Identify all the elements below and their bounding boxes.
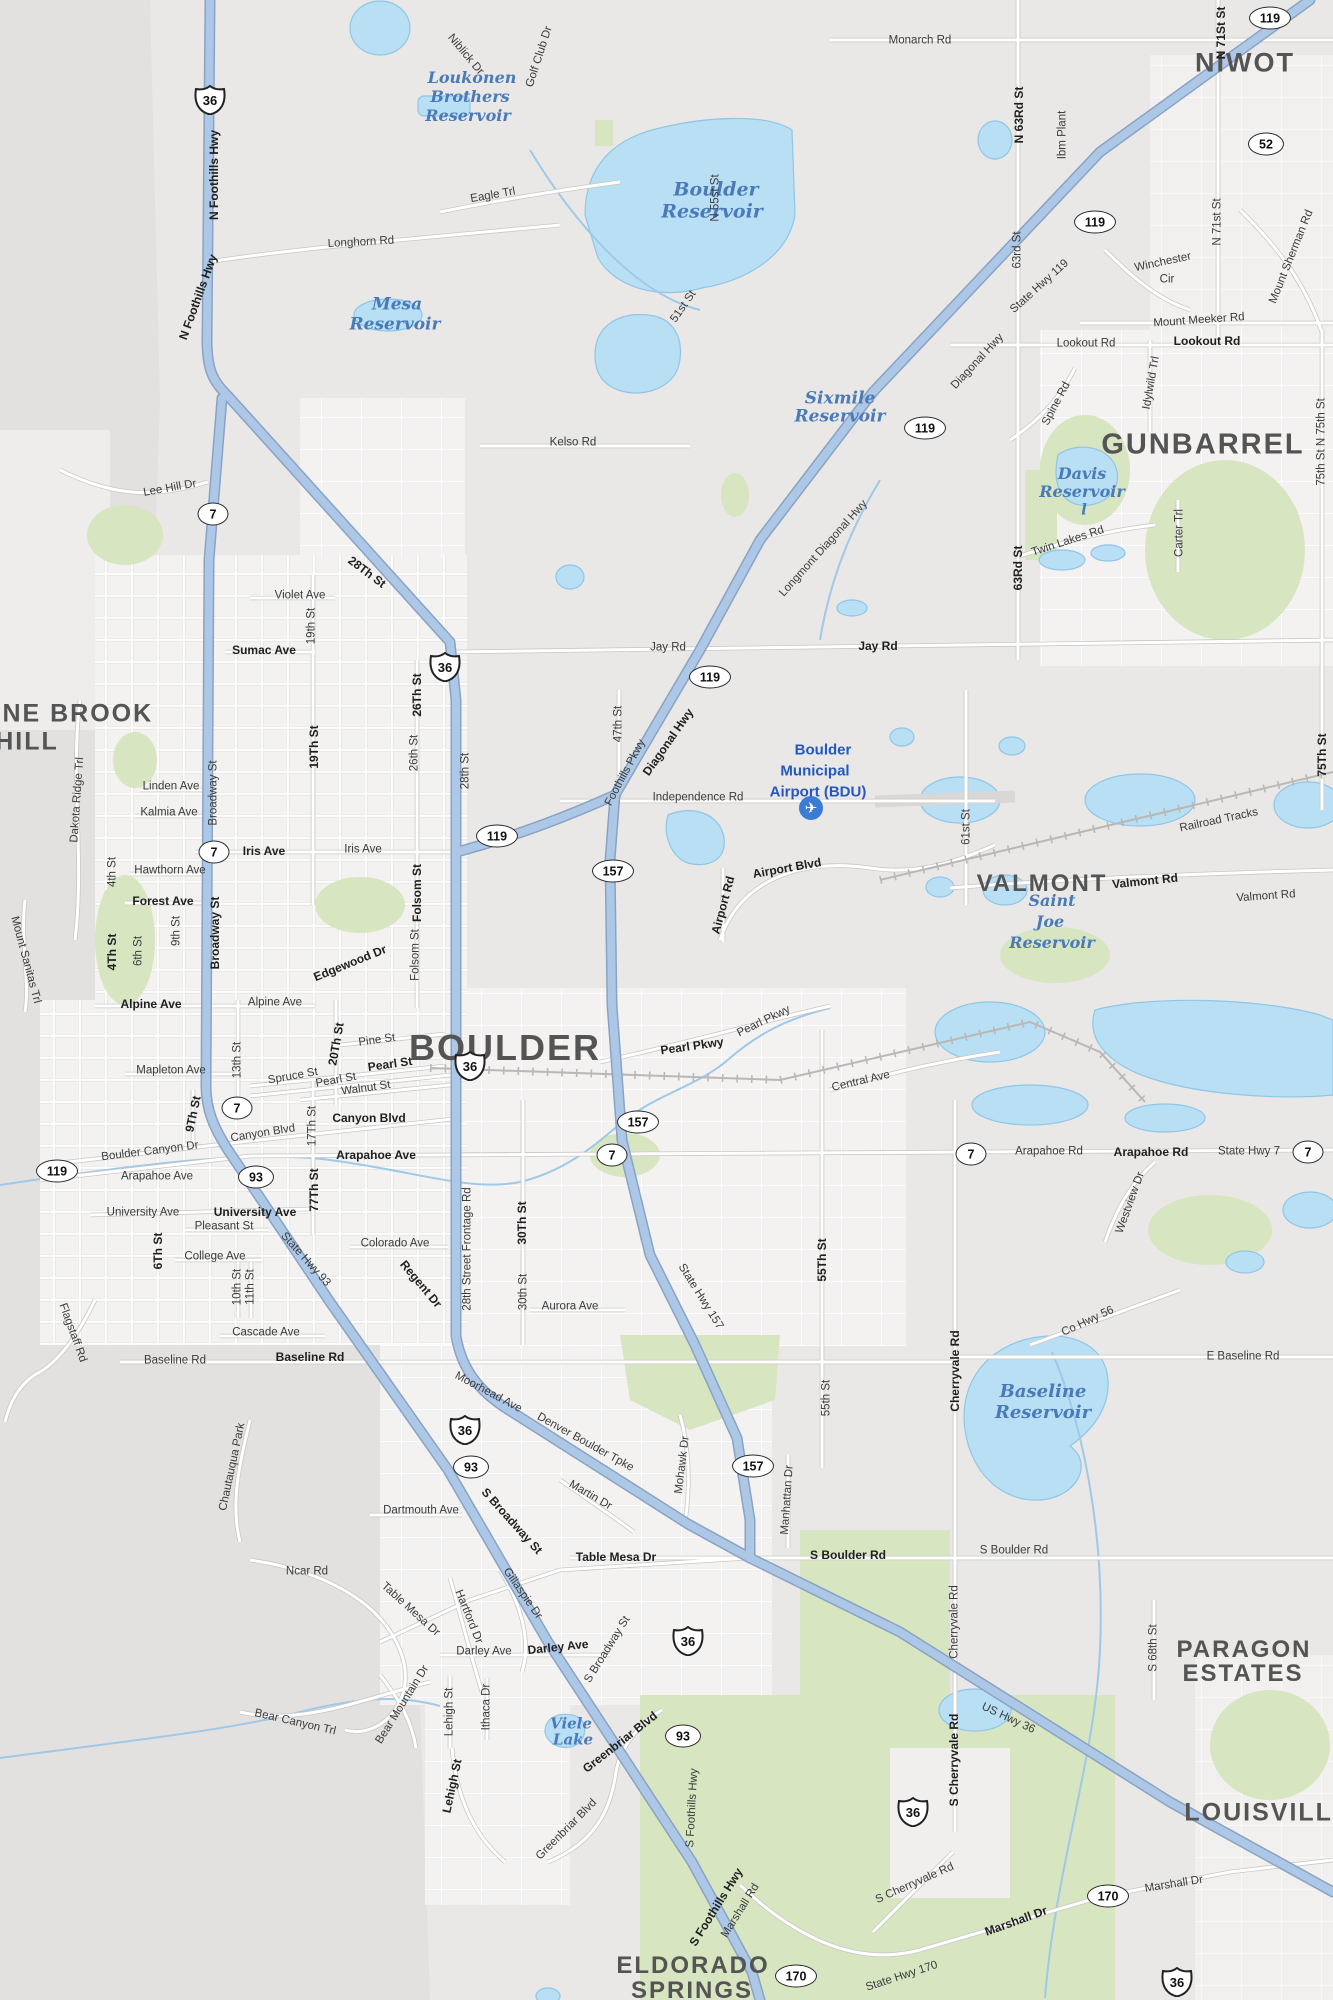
place-label: PARAGON — [1177, 1638, 1312, 1662]
state-hwy-shield: 119 — [689, 666, 731, 689]
state-hwy-shield: 93 — [238, 1166, 274, 1189]
road-label: 6Th St — [152, 1233, 164, 1270]
road-label: 11th St — [245, 1269, 257, 1305]
road-label: Golf Club Dr — [525, 25, 555, 89]
road-label: Foothills Pkwy — [604, 738, 649, 808]
road-label: S Cherryvale Rd — [948, 1714, 960, 1807]
road-label: Hartford Dr — [452, 1588, 484, 1645]
road-label: Iris Ave — [243, 845, 285, 857]
road-label: S 68th St — [1148, 1624, 1160, 1671]
road-label: Pearl Pkwy — [660, 1036, 724, 1057]
road-label: Pearl Pkwy — [736, 1004, 793, 1040]
water-label: Saint — [1028, 893, 1075, 909]
road-label: Table Mesa Dr — [576, 1551, 656, 1563]
road-label: N Foothills Hwy — [177, 253, 219, 342]
road-label: Manhattan Dr — [780, 1465, 796, 1535]
road-label: Central Ave — [831, 1070, 891, 1095]
road-label: Canyon Blvd — [230, 1123, 296, 1145]
road-label: 51st St — [669, 289, 699, 325]
road-label: 9th St — [171, 916, 183, 946]
us-route-shield: 36 — [193, 85, 227, 115]
road-label: Darley Ave — [456, 1646, 511, 1658]
us-route-shield: 36 — [448, 1415, 482, 1445]
road-label: University Ave — [214, 1206, 296, 1218]
road-label: Ithaca Dr — [481, 1684, 493, 1731]
road-label: Dakota Ridge Trl — [69, 757, 86, 843]
road-label: Colorado Ave — [361, 1238, 430, 1250]
state-hwy-shield: 7 — [198, 503, 229, 526]
state-hwy-shield: 7 — [597, 1144, 628, 1167]
place-label: GUNBARREL — [1101, 431, 1304, 460]
state-hwy-shield: 119 — [476, 825, 518, 848]
state-hwy-shield: 119 — [904, 417, 946, 440]
road-label: Winchester — [1134, 251, 1193, 274]
place-label: SPRINGS — [631, 1979, 753, 2000]
state-hwy-shield: 93 — [665, 1725, 701, 1748]
road-label: Martin Dr — [567, 1479, 614, 1513]
road-label: 63Rd St — [1012, 546, 1024, 591]
road-label: Edgewood Dr — [312, 943, 388, 983]
road-label: Lee Hill Dr — [143, 479, 198, 500]
road-label: Railroad Tracks — [1179, 807, 1260, 835]
road-label: 47th St — [613, 706, 625, 742]
road-label: 30th St — [518, 1274, 530, 1310]
road-label: S Boulder Rd — [980, 1545, 1048, 1557]
road-label: Cir — [1160, 274, 1175, 286]
road-label: Arapahoe Ave — [336, 1149, 416, 1161]
road-label: 55th St — [821, 1380, 833, 1416]
road-label: Mount Meeker Rd — [1153, 312, 1245, 330]
road-label: 20Th St — [326, 1022, 345, 1067]
state-hwy-shield: 170 — [1087, 1885, 1129, 1908]
road-label: Darley Ave — [527, 1638, 589, 1656]
water-label: Reservoir — [425, 108, 511, 124]
road-label: 6th St — [133, 936, 145, 966]
place-label: NIWOT — [1195, 50, 1295, 77]
road-label: Westview Dr — [1115, 1171, 1148, 1235]
road-label: Arapahoe Rd — [1114, 1146, 1189, 1158]
road-label: Airport Blvd — [752, 856, 822, 880]
road-label: Forest Ave — [132, 895, 193, 907]
road-label: S Broadway St — [583, 1615, 633, 1686]
road-label: 30Th St — [516, 1201, 528, 1244]
road-label: Iris Ave — [344, 844, 382, 856]
road-label: Arapahoe Rd — [1015, 1146, 1083, 1158]
road-label: State Hwy 7 — [1218, 1146, 1280, 1158]
state-hwy-shield: 157 — [732, 1455, 774, 1478]
road-label: US Hwy 36 — [979, 1702, 1036, 1737]
road-label: Bear Mountain Dr — [374, 1664, 432, 1747]
road-label: 61st St — [961, 809, 973, 845]
road-label: 9Th St — [183, 1095, 202, 1133]
road-label: 75th St N 75th St — [1316, 398, 1328, 486]
road-label: Lehigh St — [440, 1758, 463, 1814]
road-label: Gillaspie Dr — [500, 1566, 544, 1621]
road-label: Twin Lakes Rd — [1030, 525, 1105, 559]
us-route-shield: 36 — [671, 1626, 705, 1656]
road-label: University Ave — [107, 1207, 180, 1219]
place-label: HILL — [0, 730, 59, 755]
road-label: Boulder Canyon Dr — [101, 1140, 199, 1163]
road-label: Pearl St — [367, 1055, 413, 1073]
road-label: Flagstaff Rd — [56, 1302, 88, 1364]
road-label: Marshall Dr — [983, 1904, 1049, 1938]
road-label: Chautauqua Park — [218, 1422, 248, 1512]
road-label: Denver Boulder Tpke — [535, 1412, 635, 1475]
road-label: 19th St — [306, 608, 318, 644]
road-label: Greenbriar Blvd — [534, 1797, 599, 1862]
place-label: ELDORADO — [616, 1954, 769, 1978]
road-label: N 63Rd St — [1013, 87, 1025, 144]
water-label: Reservoir — [795, 409, 886, 426]
airport-label: Boulder — [795, 743, 852, 758]
road-label: 10th St — [232, 1269, 244, 1305]
road-label: College Ave — [184, 1251, 245, 1263]
state-hwy-shield: 7 — [222, 1097, 253, 1120]
road-label: Idylwild Trl — [1142, 356, 1163, 411]
road-label: Kalmia Ave — [140, 807, 197, 819]
road-label: Monarch Rd — [889, 35, 952, 47]
road-label: 26Th St — [411, 673, 423, 716]
road-label: Lookout Rd — [1057, 338, 1116, 350]
road-label: 13th St — [232, 1042, 244, 1078]
road-label: Pleasant St — [195, 1221, 254, 1233]
place-label: ESTATES — [1182, 1662, 1303, 1686]
water-label: Lake — [553, 1733, 593, 1748]
road-label: State Hwy 157 — [675, 1262, 724, 1332]
road-label: Spruce St — [267, 1067, 319, 1087]
state-hwy-shield: 7 — [1293, 1141, 1324, 1164]
road-label: Carter Trl — [1174, 509, 1186, 557]
road-label: Ncar Rd — [286, 1566, 328, 1578]
water-label: Sixmile — [805, 391, 876, 408]
road-label: Baseline Rd — [144, 1355, 206, 1367]
road-label: Baseline Rd — [276, 1351, 345, 1363]
road-label: 63rd St — [1012, 231, 1024, 268]
place-label: LOUISVILLE — [1184, 1801, 1333, 1826]
road-label: Jay Rd — [650, 642, 686, 654]
road-label: Linden Ave — [143, 781, 200, 793]
road-label: Violet Ave — [275, 590, 326, 602]
label-layer: NIWOTGUNBARRELPINE BROOKHILLVALMONTBOULD… — [0, 0, 1333, 2000]
state-hwy-shield: 93 — [453, 1456, 489, 1479]
us-route-shield: 36 — [1160, 1967, 1194, 1997]
water-label: Mesa — [372, 297, 422, 314]
road-label: State Hwy 170 — [865, 1960, 940, 1994]
state-hwy-shield: 157 — [592, 860, 634, 883]
road-label: Mount Sherman Rd — [1268, 209, 1316, 306]
road-label: Regent Dr — [398, 1258, 444, 1310]
road-label: Broadway St — [208, 760, 220, 825]
road-label: Marshall Dr — [1144, 1875, 1204, 1896]
road-label: Cascade Ave — [232, 1327, 300, 1339]
airport-label: Airport (BDU) — [770, 785, 867, 800]
road-label: Mapleton Ave — [136, 1065, 205, 1077]
road-label: Lehigh St — [444, 1688, 456, 1737]
road-label: 19Th St — [308, 725, 320, 768]
place-label: PINE BROOK — [0, 702, 153, 727]
state-hwy-shield: 52 — [1248, 133, 1284, 156]
road-label: Ibm Plant — [1057, 111, 1069, 160]
road-label: Airport Rd — [710, 875, 737, 935]
map-canvas[interactable]: NIWOTGUNBARRELPINE BROOKHILLVALMONTBOULD… — [0, 0, 1333, 2000]
water-label: Reservoir — [350, 317, 441, 334]
road-label: 28Th St — [346, 554, 388, 590]
us-route-shield: 36 — [428, 652, 462, 682]
road-label: 4Th St — [106, 934, 118, 971]
road-label: Mount Sanitas Trl — [8, 915, 42, 1004]
water-label: Viele — [550, 1717, 592, 1732]
road-label: Diagonal Hwy — [641, 706, 696, 777]
road-label: N 71St St — [1215, 7, 1227, 60]
road-label: 28th St — [460, 753, 472, 789]
road-label: Independence Rd — [653, 792, 744, 804]
state-hwy-shield: 7 — [956, 1143, 987, 1166]
road-label: Longmont Diagonal Hwy — [778, 499, 870, 600]
road-label: Kelso Rd — [550, 437, 597, 449]
road-label: Bear Canyon Trl — [253, 1708, 337, 1738]
road-label: Pine St — [358, 1033, 396, 1050]
state-hwy-shield: 119 — [1074, 211, 1116, 234]
road-label: Co Hwy 56 — [1060, 1305, 1116, 1339]
water-label: Joe — [1036, 914, 1064, 930]
road-label: Alpine Ave — [120, 998, 181, 1010]
road-label: Aurora Ave — [542, 1301, 599, 1313]
road-label: Dartmouth Ave — [383, 1505, 459, 1517]
road-label: State Hwy 93 — [278, 1231, 332, 1290]
road-label: Diagonal Hwy — [950, 332, 1007, 392]
us-route-shield: 36 — [453, 1051, 487, 1081]
road-label: Lookout Rd — [1174, 335, 1241, 347]
water-label: Davis — [1058, 466, 1107, 482]
place-label: BOULDER — [409, 1030, 601, 1066]
road-label: 26th St — [409, 735, 421, 771]
road-label: Alpine Ave — [248, 997, 302, 1009]
road-label: S Boulder Rd — [810, 1549, 886, 1561]
road-label: S Broadway St — [479, 1486, 544, 1556]
road-label: Broadway St — [209, 897, 221, 970]
road-label: Table Mesa Dr — [379, 1581, 442, 1639]
water-label: Reservoir — [1039, 484, 1125, 500]
us-route-shield: 36 — [896, 1797, 930, 1827]
road-label: Arapahoe Ave — [121, 1171, 193, 1183]
road-label: N Foothills Hwy — [208, 130, 220, 220]
road-label: S Foothills Hwy — [685, 1768, 701, 1848]
road-label: Cherryvale Rd — [949, 1585, 961, 1659]
road-label: Jay Rd — [858, 640, 897, 652]
road-label: 4th St — [107, 857, 119, 887]
road-label: Spine Rd — [1041, 380, 1073, 427]
water-label: Brothers — [430, 89, 509, 105]
airport-label: Municipal — [780, 764, 849, 779]
state-hwy-shield: 119 — [36, 1160, 78, 1183]
state-hwy-shield: 7 — [199, 841, 230, 864]
water-label: Reservoir — [995, 1404, 1091, 1422]
road-label: 55Th St — [816, 1238, 828, 1281]
road-label: Valmont Rd — [1236, 889, 1296, 905]
road-label: Eagle Trl — [470, 186, 517, 205]
road-label: Canyon Blvd — [332, 1112, 405, 1124]
road-label: 17Th St — [307, 1106, 319, 1146]
road-label: Cherryvale Rd — [949, 1330, 961, 1411]
road-label: 77Th St — [308, 1168, 320, 1211]
road-label: Moorhead Ave — [453, 1371, 524, 1416]
road-label: Sumac Ave — [232, 644, 296, 656]
state-hwy-shield: 170 — [775, 1965, 817, 1988]
road-label: N 55st St — [710, 174, 722, 221]
water-label: Reservoir — [1009, 935, 1095, 951]
road-label: Folsom St — [411, 864, 423, 922]
road-label: N 71st St — [1212, 198, 1224, 245]
road-label: Valmont Rd — [1112, 872, 1179, 891]
road-label: Hawthorn Ave — [134, 865, 205, 877]
road-label: 75Th St — [1316, 733, 1328, 776]
road-label: S Cherryvale Rd — [874, 1862, 956, 1907]
road-label: 28th Street Frontage Rd — [462, 1187, 474, 1310]
state-hwy-shield: 119 — [1249, 7, 1291, 30]
water-label: Baseline — [1000, 1383, 1087, 1401]
road-label: E Baseline Rd — [1207, 1351, 1280, 1363]
water-label: l — [1081, 503, 1087, 518]
state-hwy-shield: 157 — [617, 1111, 659, 1134]
road-label: Longhorn Rd — [327, 236, 394, 251]
road-label: Folsom St — [410, 929, 422, 981]
road-label: Mohawk Dr — [674, 1435, 693, 1494]
